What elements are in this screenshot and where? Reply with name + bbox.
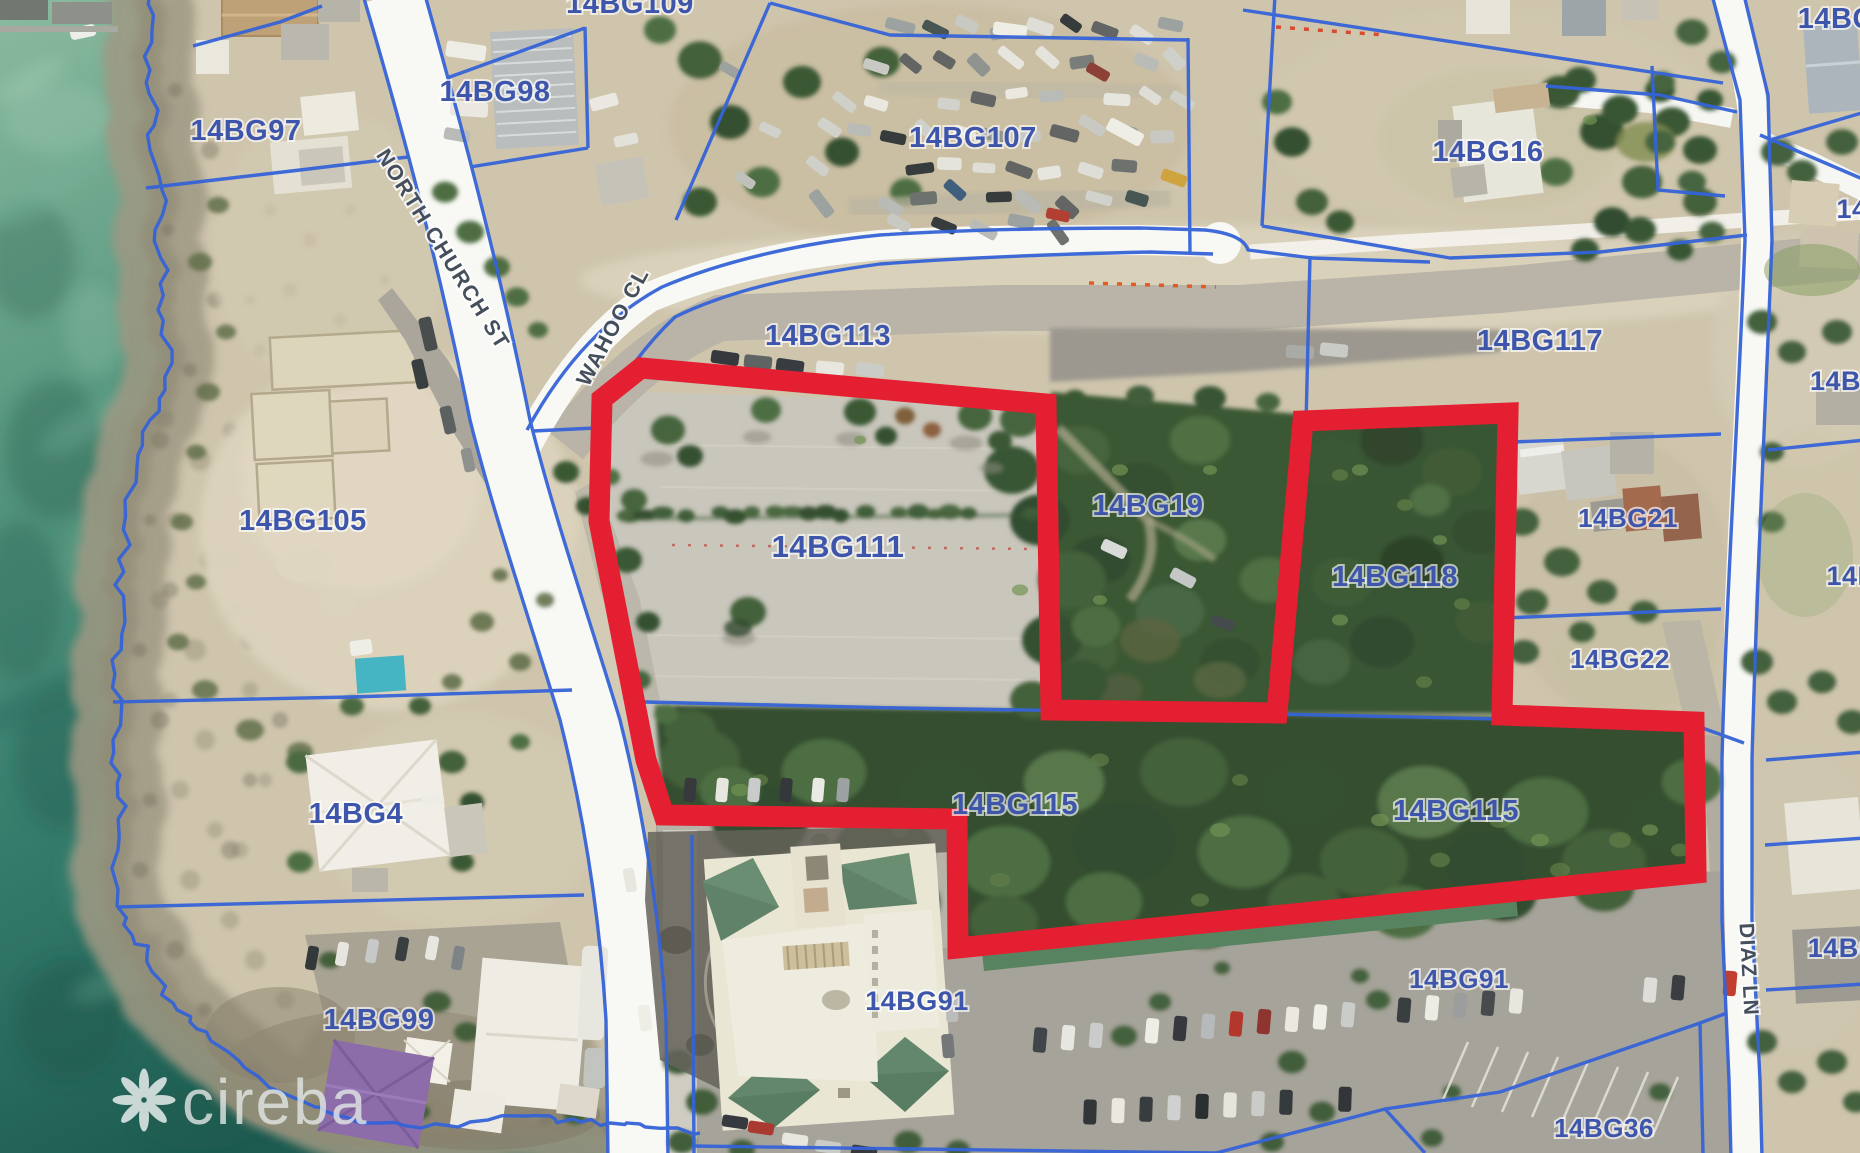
svg-text:14BG99: 14BG99: [323, 1004, 434, 1036]
svg-text:14BG2: 14BG2: [1810, 366, 1860, 396]
svg-text:14BG105: 14BG105: [239, 505, 367, 537]
svg-text:14: 14: [1836, 194, 1860, 224]
svg-text:14BG115: 14BG115: [1393, 795, 1519, 827]
svg-text:14BG111: 14BG111: [772, 529, 905, 564]
svg-text:14BG1: 14BG1: [1798, 3, 1860, 35]
svg-text:14BG97: 14BG97: [190, 115, 301, 147]
svg-text:14BG115: 14BG115: [952, 789, 1078, 821]
svg-text:14BG21: 14BG21: [1578, 503, 1678, 533]
svg-text:14BG117: 14BG117: [1477, 325, 1603, 357]
svg-text:14BG22: 14BG22: [1570, 644, 1670, 674]
svg-text:14BG19: 14BG19: [1092, 490, 1203, 522]
svg-text:14BG98: 14BG98: [439, 76, 550, 108]
svg-text:cireba: cireba: [182, 1066, 368, 1138]
svg-text:14BG109: 14BG109: [566, 0, 694, 20]
svg-text:14BG113: 14BG113: [765, 320, 891, 352]
svg-text:14BG107: 14BG107: [909, 122, 1037, 154]
svg-text:14BG: 14BG: [1808, 933, 1860, 963]
svg-text:DIAZ LN: DIAZ LN: [1735, 922, 1763, 1016]
svg-text:14BG16: 14BG16: [1432, 136, 1543, 168]
svg-text:14BG36: 14BG36: [1554, 1113, 1654, 1143]
svg-text:14BG118: 14BG118: [1332, 561, 1458, 593]
svg-text:14BG4: 14BG4: [309, 798, 403, 830]
svg-text:14BG91: 14BG91: [1409, 964, 1509, 994]
svg-text:14B: 14B: [1826, 561, 1860, 591]
svg-text:14BG91: 14BG91: [865, 986, 969, 1016]
